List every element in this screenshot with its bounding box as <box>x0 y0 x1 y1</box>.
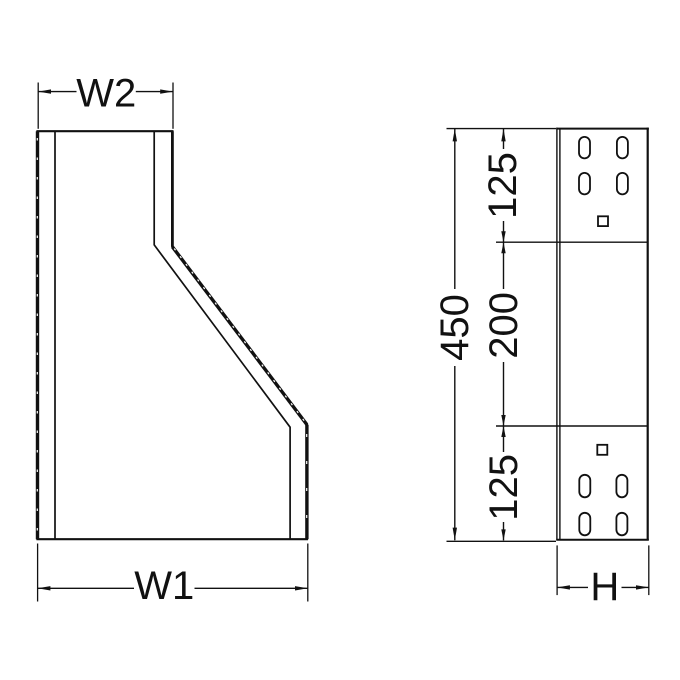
svg-text:125: 125 <box>482 454 526 521</box>
svg-text:H: H <box>590 565 619 609</box>
svg-text:W1: W1 <box>134 564 194 608</box>
svg-text:125: 125 <box>481 152 525 219</box>
svg-text:W2: W2 <box>76 72 136 116</box>
svg-text:200: 200 <box>482 292 526 359</box>
svg-text:450: 450 <box>433 294 477 361</box>
